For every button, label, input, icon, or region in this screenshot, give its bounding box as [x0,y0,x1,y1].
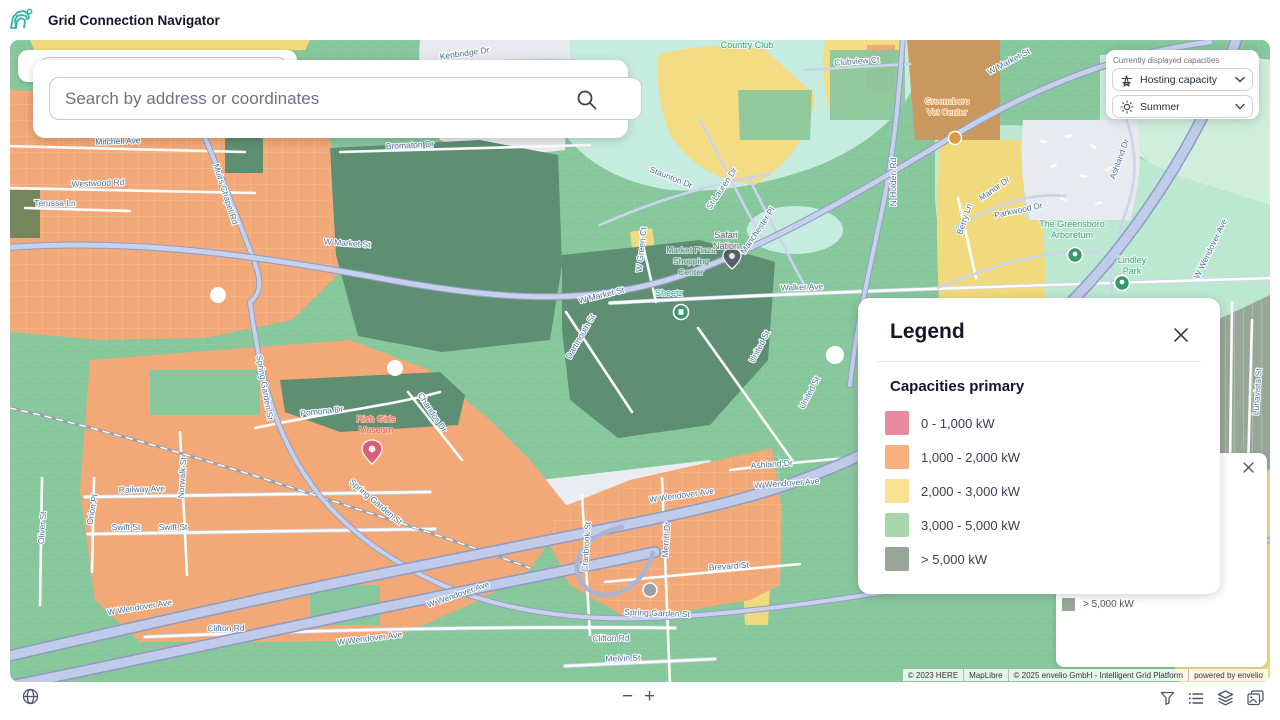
map-label-arb2: Arboretum [1051,230,1093,240]
map-attribution: © 2023 HERE MapLibre © 2025 envelio GmbH… [903,669,1268,681]
map-label-terussa: Terussa Ln [34,198,76,208]
close-icon[interactable] [1172,326,1190,344]
attribution-envelio: © 2025 envelio GmbH - Intelligent Grid P… [1008,669,1189,681]
map-label-mp2: Shopping [673,256,709,266]
legend-row-label: > 5,000 kW [1083,599,1134,610]
map-label-swift2: Swift St [159,522,188,532]
map-label-railway: Railway Ave [119,483,166,495]
attribution-powered-by: powered by envelio [1188,669,1268,681]
map-label-walker: Walker Ave [780,281,823,292]
app-header: Grid Connection Navigator [0,0,1280,40]
app-title: Grid Connection Navigator [48,13,220,28]
capacity-type-dropdown[interactable]: Hosting capacity [1112,68,1253,91]
filter-icon [1160,691,1175,706]
legend-row: > 5,000 kW [1062,598,1134,611]
legend-row: 2,000 - 3,000 kW [885,479,1200,503]
map-label-swift1: Swift St [112,522,141,532]
chevron-down-icon [1235,76,1245,83]
legend-swatch [885,547,909,571]
chevron-down-icon [1235,103,1245,110]
map-label-mp3: Center [678,267,704,277]
map-label-holden: N Holden Rd [888,157,898,206]
legend-row: > 5,000 kW [885,547,1200,571]
capacities-panel: Currently displayed capacities Hosting c… [1106,50,1259,119]
legend-row: 1,000 - 2,000 kW [885,445,1200,469]
legend-swatch [885,445,909,469]
season-value: Summer [1140,101,1235,113]
globe-icon [22,688,39,705]
map-label-lind2: Park [1123,266,1142,276]
map-label-country_club: Country Club [721,40,774,50]
map-container[interactable]: Kenbridge DrCountry ClubClubview CtStaun… [10,40,1270,682]
legend-panel: Legend Capacities primary 0 - 1,000 kW 1… [858,298,1220,594]
basemap-button[interactable] [1245,688,1266,711]
map-label-clifton1: Clifton Rd [207,623,245,634]
capacities-panel-label: Currently displayed capacities [1113,56,1259,65]
legend-swatch [885,513,909,537]
map-label-safari2: Nation [713,241,739,251]
map-label-sheetz: Sheetz [655,288,684,298]
envelio-logo [8,7,34,33]
list-icon [1188,691,1204,706]
basemap-images-icon [1247,690,1264,706]
map-label-museum1: Rich Girls [356,414,396,424]
legend-title: Legend [890,320,965,344]
zoom-in-button[interactable]: + [642,684,657,710]
search-input[interactable] [49,77,642,120]
attribution-maplibre[interactable]: MapLibre [963,669,1007,681]
legend-rows: 0 - 1,000 kW 1,000 - 2,000 kW 2,000 - 3,… [885,411,1200,581]
close-icon[interactable] [1242,461,1255,474]
vet-center-marker-icon [949,132,962,145]
map-label-westwood: Westwood Rd [71,177,124,189]
layers-button[interactable] [1215,688,1236,711]
zoom-out-button[interactable]: − [620,684,635,710]
legend-swatch [1062,598,1075,611]
map-label-safari1: Safari [714,230,738,240]
list-button[interactable] [1186,688,1206,711]
map-label-clifton2: Clifton Rd [592,633,630,644]
legend-row-label: 2,000 - 3,000 kW [921,484,1020,499]
map-label-vet2: Vet Center [927,107,967,117]
map-label-mp1: Market Plaza [666,245,716,255]
search-icon[interactable] [576,89,598,111]
legend-divider [877,361,1201,362]
pylon-icon [1120,73,1134,87]
sun-icon [1120,100,1134,114]
map-label-arb1: The Greensboro [1039,219,1105,229]
toolbar-right-group [1158,688,1266,711]
map-label-lind1: Lindley [1118,255,1147,265]
season-dropdown[interactable]: Summer [1112,95,1253,118]
layers-icon [1217,690,1234,706]
map-toolbar: − + [0,682,1280,720]
legend-row-label: 1,000 - 2,000 kW [921,450,1020,465]
globe-button[interactable] [20,686,41,710]
capacity-type-value: Hosting capacity [1140,74,1235,86]
legend-row-label: > 5,000 kW [921,552,987,567]
search-card [33,60,628,138]
gray-poi-marker-icon [643,583,657,597]
legend-swatch [885,411,909,435]
map-label-melvin: Melvin St [605,652,641,663]
legend-section-heading: Capacities primary [890,378,1024,395]
legend-row: 3,000 - 5,000 kW [885,513,1200,537]
attribution-here: © 2023 HERE [903,669,963,681]
legend-swatch [885,479,909,503]
legend-row: 0 - 1,000 kW [885,411,1200,435]
legend-row-label: 0 - 1,000 kW [921,416,995,431]
filter-button[interactable] [1158,688,1177,711]
map-label-museum2: Museum [359,425,394,435]
map-label-vet1: Greensboro [925,96,970,106]
legend-row-label: 3,000 - 5,000 kW [921,518,1020,533]
